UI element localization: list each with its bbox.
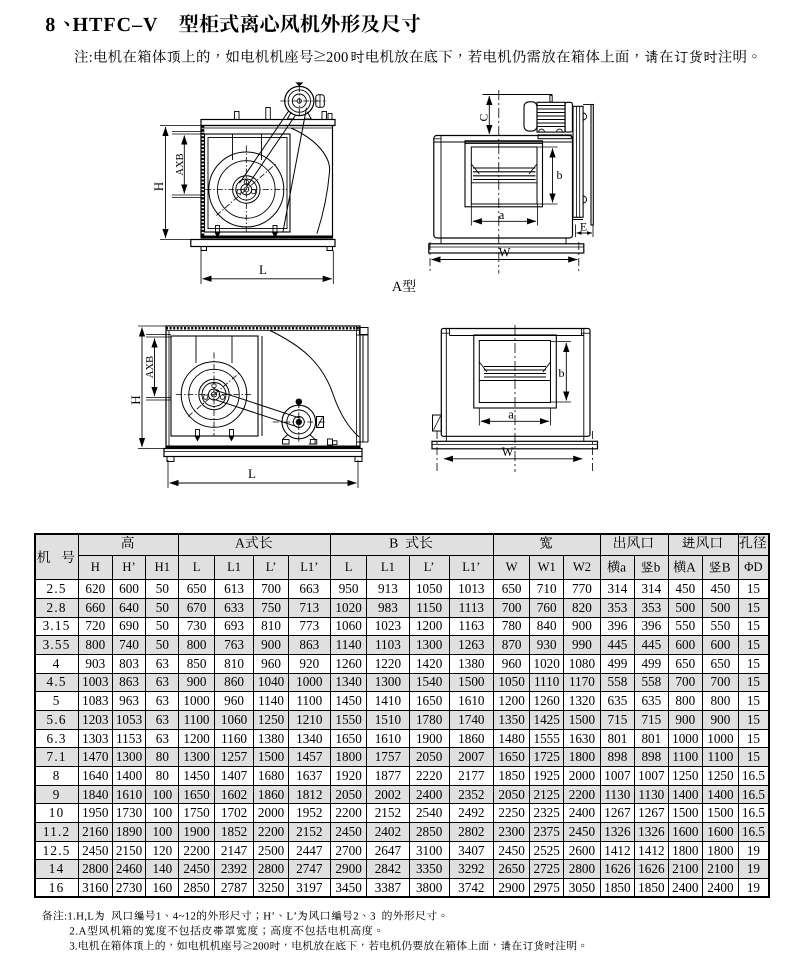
svg-text:H: H <box>128 395 143 404</box>
svg-text:E: E <box>580 220 587 234</box>
svg-text:a: a <box>499 208 505 222</box>
svg-text:L: L <box>259 262 267 277</box>
svg-text:H: H <box>151 182 166 191</box>
svg-text:W: W <box>499 246 511 260</box>
svg-text:W: W <box>502 445 514 459</box>
svg-text:a: a <box>508 408 514 422</box>
svg-text:AXB: AXB <box>175 153 186 175</box>
svg-text:b: b <box>559 366 565 380</box>
svg-text:L: L <box>248 466 256 481</box>
svg-text:C: C <box>477 113 491 121</box>
svg-text:b: b <box>557 168 563 182</box>
svg-text:AXB: AXB <box>145 356 156 378</box>
